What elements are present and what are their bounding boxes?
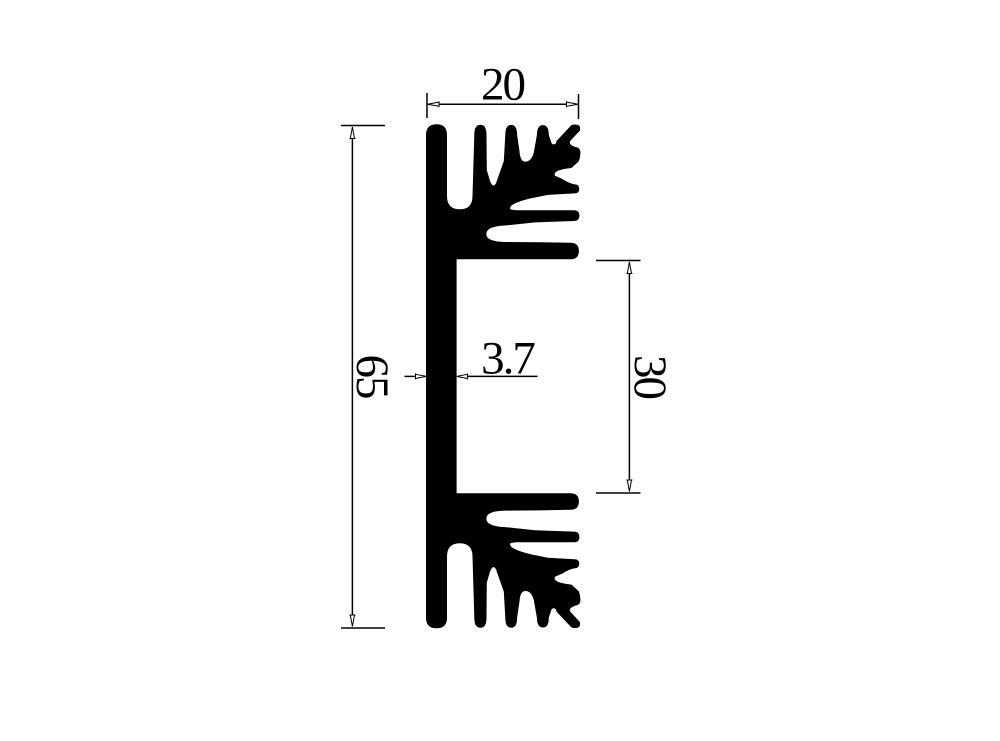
svg-text:65: 65	[346, 355, 398, 399]
svg-text:30: 30	[624, 355, 676, 399]
svg-text:3.7: 3.7	[481, 333, 535, 385]
svg-text:20: 20	[481, 59, 525, 111]
